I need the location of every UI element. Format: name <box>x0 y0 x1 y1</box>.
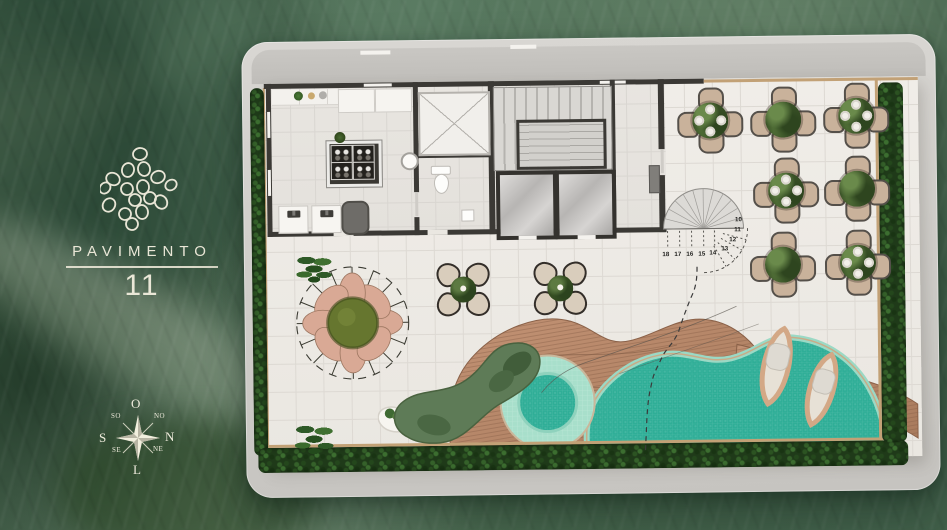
plate <box>851 122 861 132</box>
plate <box>792 185 802 195</box>
grill-module <box>353 145 375 163</box>
grill-module <box>331 145 353 163</box>
plate <box>770 186 780 196</box>
spiral-step-number: 11 <box>734 226 741 233</box>
table-plant <box>547 275 573 301</box>
divider-line <box>66 266 218 268</box>
counter-plant <box>294 92 303 101</box>
staircase <box>493 86 613 171</box>
slab-slit <box>510 45 536 49</box>
slab-slit <box>360 50 390 54</box>
elevator-door <box>577 235 595 239</box>
floor-plan: 18 17 16 15 14 13 12 11 10 <box>264 76 923 464</box>
door-leaf <box>415 192 418 216</box>
window-slit <box>364 83 392 86</box>
dining-table-set <box>750 231 817 298</box>
dining-table-set <box>824 155 891 222</box>
grill-module <box>331 162 353 180</box>
door-gap <box>428 230 448 235</box>
plate <box>840 111 850 121</box>
compass-label-right: N <box>165 429 174 445</box>
island-plant <box>334 132 345 143</box>
fern-plant <box>292 419 336 456</box>
office-chair <box>341 201 369 235</box>
shower-room <box>418 91 491 156</box>
plate <box>864 258 874 268</box>
workstation-desk <box>278 205 308 233</box>
plate <box>705 104 715 114</box>
compass-label-bottom: L <box>133 462 141 478</box>
dining-table-set <box>677 87 744 154</box>
plan-card: 18 17 16 15 14 13 12 11 10 <box>241 34 941 498</box>
elevator-2 <box>555 170 617 240</box>
window-slit <box>267 112 270 138</box>
workstation-desk <box>311 205 341 233</box>
dining-table-set <box>753 157 820 224</box>
wire-chair-set <box>531 259 590 318</box>
plate <box>862 111 872 121</box>
tabletop <box>840 245 876 281</box>
floor-number: 11 <box>66 269 218 303</box>
spiral-step-number: 12 <box>729 236 737 243</box>
staircase-landing <box>516 119 607 170</box>
plate <box>842 258 852 268</box>
wall-cabinet <box>375 88 412 112</box>
plate <box>694 116 704 126</box>
tabletop <box>838 98 874 134</box>
wc-sink <box>461 209 474 221</box>
door-leaf <box>661 149 664 173</box>
plate <box>716 115 726 125</box>
plate <box>853 269 863 279</box>
monitor-icon <box>320 210 333 217</box>
counter-bowl <box>308 92 315 99</box>
compass-label-bottom-left: SE <box>112 446 121 454</box>
plate <box>851 100 861 110</box>
compass-label-top: O <box>131 396 140 412</box>
spiral-step-number: 10 <box>735 216 743 223</box>
plate <box>705 126 715 136</box>
compass-label-bottom-right: NE <box>153 445 163 453</box>
fern-plant <box>295 251 333 283</box>
route-dashed-line <box>626 248 724 461</box>
wall-corridor-right <box>658 79 665 149</box>
tabletop <box>765 101 801 137</box>
compass-label-left: S <box>99 430 106 446</box>
floor-label: PAVIMENTO <box>52 243 232 260</box>
wall-cabinet <box>338 89 375 113</box>
monitor-icon <box>287 211 300 218</box>
plate <box>853 247 863 257</box>
compass-label-top-left: SO <box>111 412 121 420</box>
spiral-step-number: 13 <box>721 245 729 252</box>
brand-logo <box>100 143 186 235</box>
counter-kettle <box>319 91 327 99</box>
elevator-door <box>518 236 536 240</box>
wire-chair-set <box>434 260 493 319</box>
chaise-lounge <box>377 335 558 457</box>
dining-table-set <box>823 82 890 149</box>
elevator-1 <box>496 170 558 240</box>
dining-table-set <box>750 86 817 153</box>
window-slit <box>268 170 271 196</box>
scene: PAVIMENTO 11 O N S L NO SO SE NE <box>0 0 947 530</box>
grill-module <box>353 162 375 180</box>
plate <box>781 197 791 207</box>
plate <box>781 175 791 185</box>
wall-clock <box>401 152 419 170</box>
barbecue-island <box>326 141 382 188</box>
compass-label-top-right: NO <box>154 412 165 420</box>
dining-table-set <box>825 229 892 296</box>
